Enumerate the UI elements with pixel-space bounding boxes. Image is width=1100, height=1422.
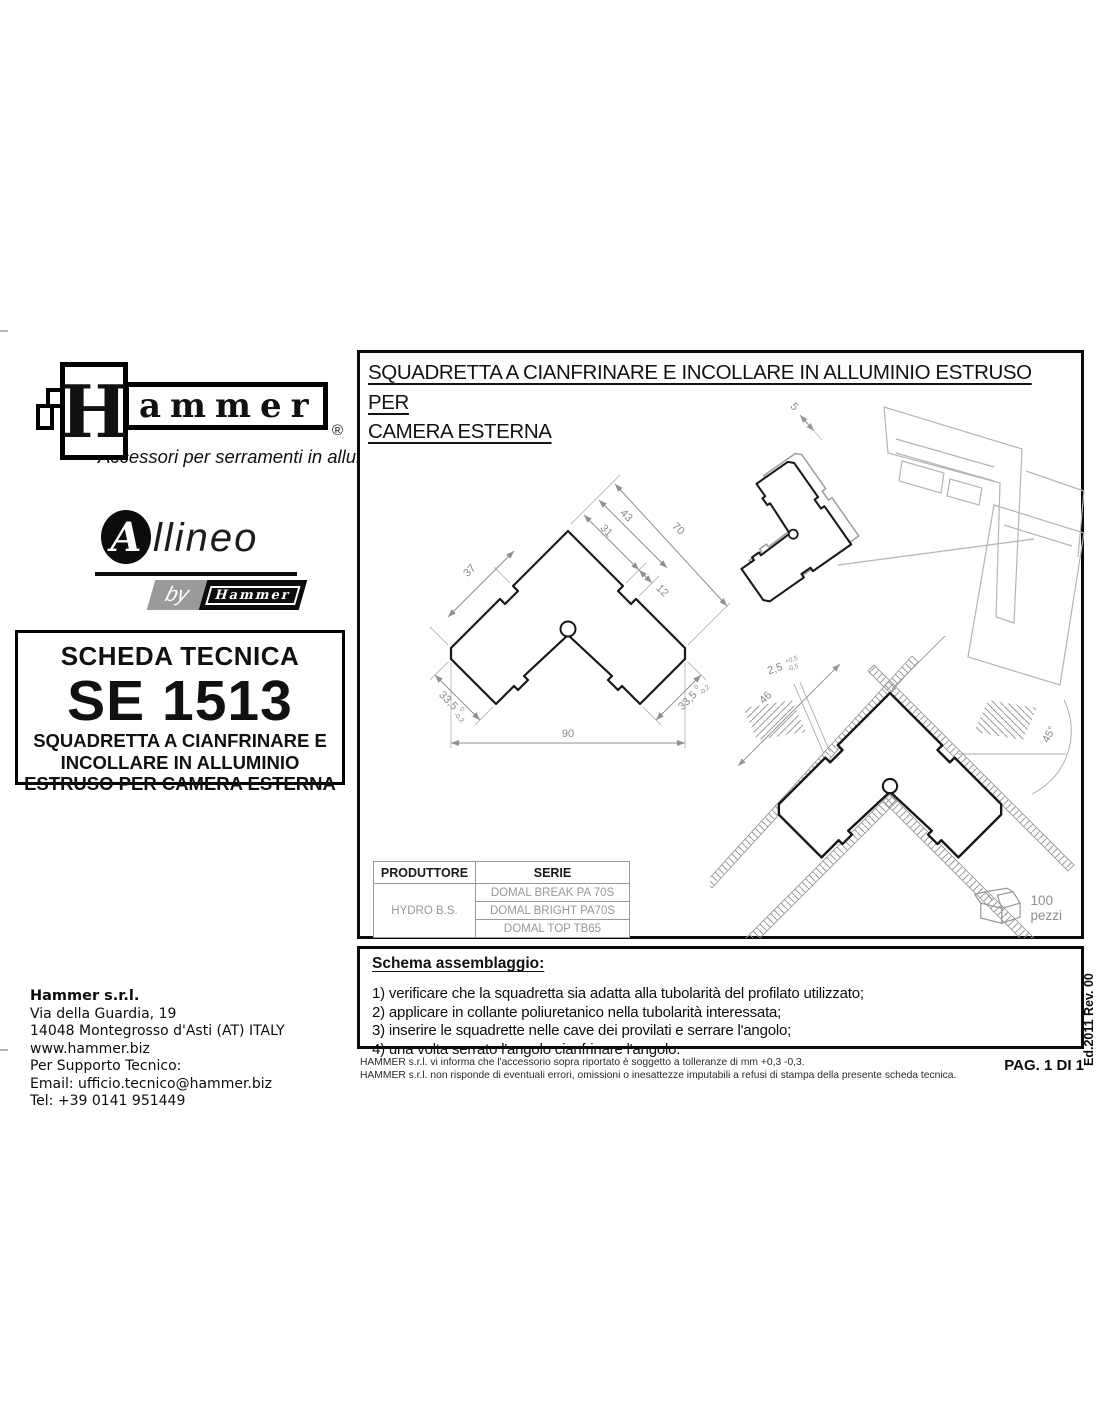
cut-wall-block-left — [743, 700, 806, 740]
edition-revision: Ed.2011 Rev. 00 — [1082, 938, 1098, 1066]
company-support-label: Per Supporto Tecnico: — [30, 1058, 285, 1076]
tech-sheet-description-line1: SQUADRETTA A CIANFRINARE E — [18, 730, 342, 751]
page-registration-tick — [0, 1049, 8, 1051]
producer-series-table: PRODUTTORE SERIE HYDRO B.S. DOMAL BREAK … — [373, 861, 630, 938]
assembly-steps: 1) verificare che la squadretta sia adat… — [372, 985, 1069, 1059]
dim-line-5 — [800, 415, 814, 431]
hammer-logo-wordmark-text: ammer — [139, 386, 318, 426]
hammer-logo-wordmark: ammer — [124, 382, 328, 430]
tech-sheet-label: SCHEDA TECNICA — [18, 641, 342, 672]
svg-text:2,5: 2,5 — [766, 661, 784, 677]
company-email: Email: ufficio.tecnico@hammer.biz — [30, 1076, 285, 1094]
hammer-logo-step — [36, 404, 54, 430]
open-box-icon — [972, 881, 1024, 927]
allineo-by-badge: by — [147, 580, 208, 610]
table-cell-serie-2: DOMAL BRIGHT PA70S — [476, 902, 630, 920]
assembly-heading: Schema assemblaggio: — [372, 955, 1069, 973]
drawing-title-line2: CAMERA ESTERNA — [368, 420, 552, 443]
svg-text:33,5: 33,5 — [676, 689, 700, 713]
bracket-front-view-drawing: 37 31 43 12 70 33,5 0 -0,2 33,5 0 -0,2 9… — [408, 471, 730, 763]
tech-sheet-description-line3: ESTRUSO PER CAMERA ESTERNA — [18, 773, 342, 794]
hammer-logo-h: H — [60, 362, 128, 460]
angle-label-45: 45° — [1040, 724, 1058, 744]
registered-trademark-symbol: ® — [332, 422, 343, 439]
hammer-logo: H ammer ® Accessori per serramenti in al… — [32, 362, 362, 480]
dim-label-335-left: 33,5 0 -0,2 — [435, 688, 471, 724]
extension-line — [814, 431, 822, 440]
dim-label-43: 43 — [618, 507, 635, 524]
allineo-logo: A llineo by Hammer — [95, 510, 315, 620]
company-contact-block: Hammer s.r.l. Via della Guardia, 19 1404… — [30, 988, 285, 1111]
disclaimer-line-2: HAMMER s.r.l. non risponde di eventuali … — [360, 1069, 1000, 1082]
svg-text:-0,2: -0,2 — [452, 711, 465, 724]
page-registration-tick — [0, 330, 8, 332]
assembly-step-3: 3) inserire le squadrette nelle cave dei… — [372, 1022, 1069, 1041]
tech-sheet-description-line2: INCOLLARE IN ALLUMINIO — [18, 752, 342, 773]
allineo-hammer-badge: Hammer — [199, 580, 308, 610]
package-quantity: 100 pezzi — [972, 881, 1081, 927]
tech-sheet-code: SE 1513 — [18, 672, 342, 730]
hammer-tagline: Accessori per serramenti in alluminio — [98, 446, 398, 468]
company-address-line: 14048 Montegrosso d'Asti (AT) ITALY — [30, 1023, 285, 1041]
hammer-logo-h-letter: H — [60, 369, 128, 454]
assembly-step-2: 2) applicare in collante poliuretanico n… — [372, 1004, 1069, 1023]
bracket-profile-outline — [451, 531, 685, 704]
table-row: HYDRO B.S. DOMAL BREAK PA 70S — [374, 884, 630, 902]
dim-label-5: 5 — [788, 400, 801, 413]
allineo-a-letter: A — [110, 514, 141, 561]
dim-label-25: 2,5 +0,5 -0,5 — [766, 655, 802, 679]
bracket-center-hole — [561, 622, 576, 637]
company-address-line: Via della Guardia, 19 — [30, 1006, 285, 1024]
allineo-a-mark: A — [101, 510, 151, 564]
page-number: PAG. 1 DI 1 — [988, 1057, 1084, 1074]
table-cell-producer: HYDRO B.S. — [374, 884, 476, 938]
dim-label-31: 31 — [598, 522, 615, 539]
company-name: Hammer s.r.l. — [30, 988, 285, 1006]
assembly-instructions-panel: Schema assemblaggio: 1) verificare che l… — [357, 946, 1084, 1049]
svg-text:33,5: 33,5 — [436, 689, 460, 713]
table-header-row: PRODUTTORE SERIE — [374, 862, 630, 884]
quantity-label: 100 pezzi — [1030, 893, 1081, 927]
allineo-underline — [95, 572, 297, 576]
dim-label-90: 90 — [562, 728, 574, 740]
allineo-hammer-text: Hammer — [206, 586, 301, 605]
allineo-wordmark: llineo — [153, 516, 258, 561]
disclaimer-line-1: HAMMER s.r.l. vi informa che l'accessori… — [360, 1056, 1000, 1069]
cut-wall-block-right — [974, 700, 1037, 740]
dim-label-37: 37 — [461, 562, 478, 579]
dim-label-12: 12 — [654, 582, 671, 599]
assembly-step-1: 1) verificare che la squadretta sia adat… — [372, 985, 1069, 1004]
tech-sheet-id-box: SCHEDA TECNICA SE 1513 SQUADRETTA A CIAN… — [15, 630, 345, 785]
dim-label-70: 70 — [670, 520, 687, 537]
bracket-isometric-body — [737, 448, 871, 615]
table-header-serie: SERIE — [476, 862, 630, 884]
table-header-produttore: PRODUTTORE — [374, 862, 476, 884]
company-phone: Tel: +39 0141 951449 — [30, 1093, 285, 1111]
company-website: www.hammer.biz — [30, 1041, 285, 1059]
allineo-by-text: by — [162, 583, 191, 607]
technical-drawing-panel: SQUADRETTA A CIANFRINARE E INCOLLARE IN … — [357, 350, 1084, 939]
table-cell-serie-1: DOMAL BREAK PA 70S — [476, 884, 630, 902]
bracket-in-assembly — [779, 693, 1001, 857]
legal-disclaimer: HAMMER s.r.l. vi informa che l'accessori… — [360, 1056, 1000, 1082]
table-cell-serie-3: DOMAL TOP TB65 — [476, 920, 630, 938]
